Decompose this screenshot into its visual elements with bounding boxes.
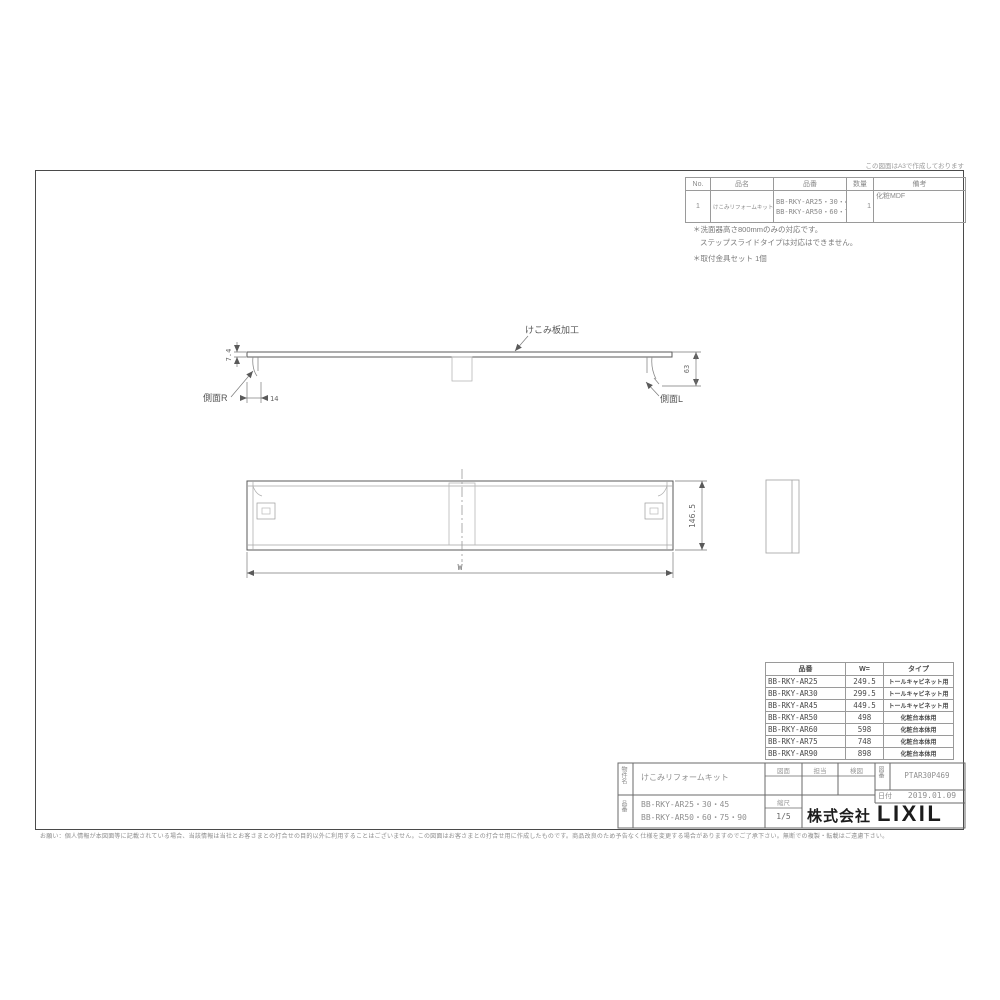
- side-l-label: 側面L: [660, 393, 683, 404]
- parts-header-number: 品番: [774, 178, 847, 191]
- spec-number: BB-RKY-AR25: [766, 676, 846, 688]
- dim-thickness-label: 7.4: [225, 349, 233, 362]
- spec-w: 748: [846, 736, 884, 748]
- parts-row: 1 けこみリフォームキット BB-RKY-AR25・30・45 BB-RKY-A…: [686, 191, 966, 223]
- front-view: [247, 469, 673, 562]
- spec-row: BB-RKY-AR25 249.5 トールキャビネット用: [766, 676, 954, 688]
- parts-header-qty: 数量: [847, 178, 874, 191]
- notes-block: ＊洗面器高さ800mmのみの対応です。 ステップスライドタイプは対応はできません…: [693, 223, 857, 265]
- title-drawing-no: PTAR30P469: [890, 771, 964, 780]
- spec-type: 化粧台本体用: [884, 712, 954, 724]
- title-scale: 1/5: [765, 812, 802, 821]
- dim-offset-label: 14: [270, 395, 278, 403]
- spec-header-type: タイプ: [884, 663, 954, 676]
- parts-no: 1: [686, 191, 711, 223]
- spec-row: BB-RKY-AR30 299.5 トールキャビネット用: [766, 688, 954, 700]
- side-view: [247, 352, 672, 384]
- technical-drawing-svg: 7.4 側面R 14 けこみ板加工 63 側面L: [0, 0, 1000, 1000]
- title-date: 2019.01.09: [901, 791, 963, 800]
- spec-row: BB-RKY-AR45 449.5 トールキャビネット用: [766, 700, 954, 712]
- parts-number-line2: BB-RKY-AR50・60・75・90: [776, 207, 844, 217]
- title-project: けこみリフォームキット: [641, 772, 729, 783]
- dim-width-label: W: [458, 563, 463, 572]
- parts-header-no: No.: [686, 178, 711, 191]
- parts-table: No. 品名 品番 数量 備考 1 けこみリフォームキット BB-RKY-AR2…: [685, 177, 966, 223]
- parts-header-remarks: 備考: [874, 178, 966, 191]
- title-drawing-no-label: 図番: [877, 766, 883, 788]
- parts-header-name: 品名: [711, 178, 774, 191]
- drawing-sheet: この図面はA3で作成しております 7.4 側面R: [0, 0, 1000, 1000]
- spec-w: 498: [846, 712, 884, 724]
- kekomi-label: けこみ板加工: [525, 324, 579, 335]
- side-l-leader: [646, 382, 659, 396]
- spec-type: 化粧台本体用: [884, 747, 954, 759]
- parts-remarks: 化粧MDF: [874, 191, 966, 223]
- spec-w: 299.5: [846, 688, 884, 700]
- parts-number-line1: BB-RKY-AR25・30・45: [776, 197, 844, 207]
- side-r-label: 側面R: [203, 392, 228, 403]
- spec-type: トールキャビネット用: [884, 688, 954, 700]
- spec-number: BB-RKY-AR45: [766, 700, 846, 712]
- spec-number: BB-RKY-AR30: [766, 688, 846, 700]
- spec-w: 598: [846, 724, 884, 736]
- spec-row: BB-RKY-AR60 598 化粧台本体用: [766, 724, 954, 736]
- side-profile-view: [766, 480, 799, 553]
- dim-thickness: [234, 342, 246, 367]
- parts-qty: 1: [847, 191, 874, 223]
- title-part-line1: BB-RKY-AR25・30・45: [641, 799, 729, 810]
- sheet-size-note: この図面はA3で作成しております: [664, 160, 964, 170]
- spec-w: 898: [846, 747, 884, 759]
- dim-end-height-label: 63: [683, 365, 691, 373]
- spec-w: 249.5: [846, 676, 884, 688]
- title-project-label: 物件名: [620, 766, 626, 794]
- note-1: ＊洗面器高さ800mmのみの対応です。: [693, 223, 857, 236]
- spec-row: BB-RKY-AR50 498 化粧台本体用: [766, 712, 954, 724]
- spec-number: BB-RKY-AR90: [766, 747, 846, 759]
- note-3: ＊取付金具セット 1個: [693, 252, 857, 265]
- title-part-line2: BB-RKY-AR50・60・75・90: [641, 812, 747, 823]
- spec-type: トールキャビネット用: [884, 700, 954, 712]
- spec-number: BB-RKY-AR50: [766, 712, 846, 724]
- spec-header-number: 品番: [766, 663, 846, 676]
- dim-body-height-label: 146.5: [688, 504, 697, 528]
- spec-w: 449.5: [846, 700, 884, 712]
- spec-type: 化粧台本体用: [884, 736, 954, 748]
- dim-offset: [240, 382, 268, 403]
- parts-name: けこみリフォームキット: [711, 191, 774, 223]
- spec-row: BB-RKY-AR75 748 化粧台本体用: [766, 736, 954, 748]
- note-2: ステップスライドタイプは対応はできません。: [693, 236, 857, 249]
- spec-header-w: W=: [846, 663, 884, 676]
- kekomi-leader: [515, 336, 528, 351]
- spec-row: BB-RKY-AR90 898 化粧台本体用: [766, 747, 954, 759]
- spec-number: BB-RKY-AR60: [766, 724, 846, 736]
- spec-type: トールキャビネット用: [884, 676, 954, 688]
- title-date-label: 日付: [878, 791, 892, 801]
- spec-table: 品番 W= タイプ BB-RKY-AR25 249.5 トールキャビネット用 B…: [765, 662, 954, 760]
- side-r-leader: [231, 371, 253, 397]
- spec-type: 化粧台本体用: [884, 724, 954, 736]
- spec-number: BB-RKY-AR75: [766, 736, 846, 748]
- parts-number: BB-RKY-AR25・30・45 BB-RKY-AR50・60・75・90: [774, 191, 847, 223]
- title-part-label: 品番: [620, 800, 626, 822]
